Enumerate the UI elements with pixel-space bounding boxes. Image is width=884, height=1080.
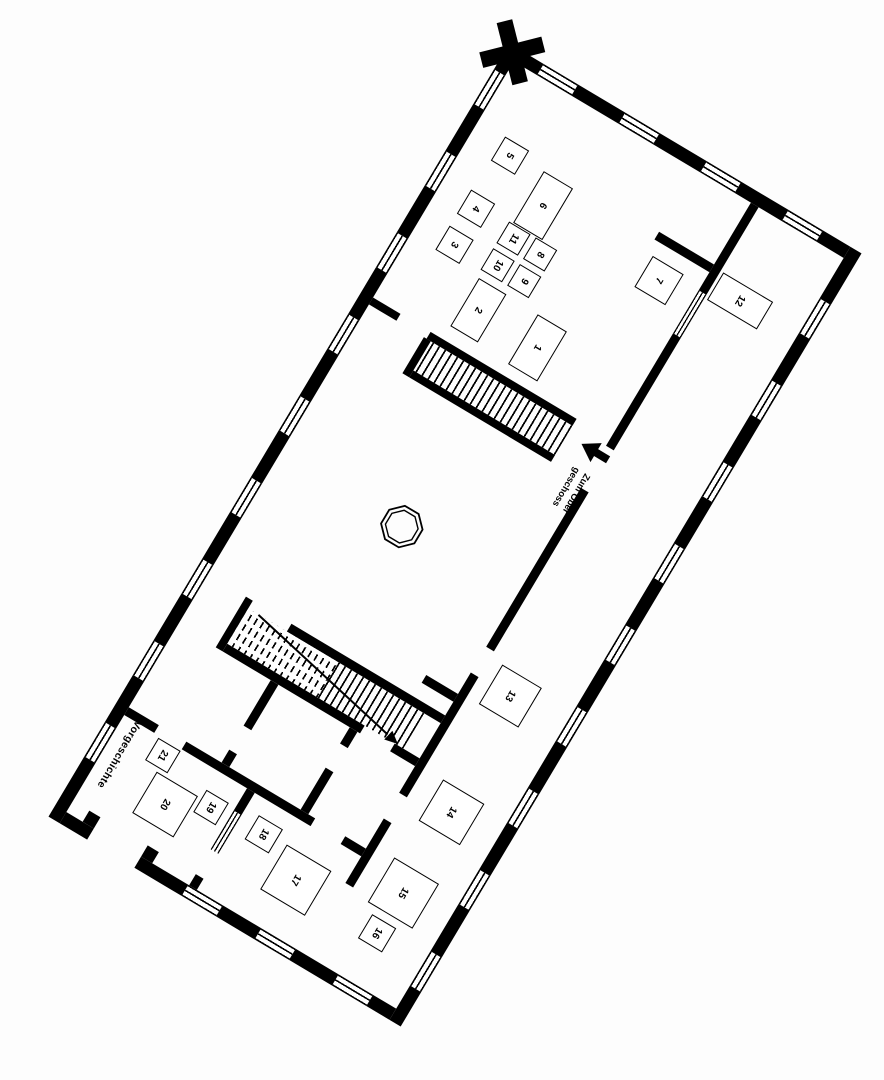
window-segment bbox=[459, 870, 491, 911]
window-segment bbox=[799, 298, 831, 339]
exhibit-box-13: 13 bbox=[479, 665, 542, 728]
wall-segment bbox=[653, 133, 707, 172]
exhibit-box-19: 19 bbox=[193, 790, 229, 826]
wall-segment bbox=[606, 333, 681, 450]
wall-segment bbox=[134, 857, 188, 896]
wall-segment bbox=[430, 904, 469, 958]
window-segment bbox=[182, 559, 214, 600]
octagon-column bbox=[372, 496, 432, 556]
exhibit-box-9: 9 bbox=[507, 264, 541, 298]
wall-segment bbox=[445, 104, 484, 158]
exhibit-box-2: 2 bbox=[450, 278, 506, 342]
exhibit-box-5: 5 bbox=[491, 136, 529, 174]
window-segment bbox=[182, 885, 223, 917]
wall-segment bbox=[771, 333, 810, 387]
window-segment bbox=[279, 396, 311, 437]
exhibit-box-7: 7 bbox=[634, 256, 683, 305]
exhibit-box-21: 21 bbox=[145, 738, 181, 774]
exhibit-box-14: 14 bbox=[419, 779, 485, 845]
window-segment bbox=[410, 951, 442, 992]
exhibit-box-18: 18 bbox=[245, 815, 283, 853]
to-upper-floor-arrow-icon bbox=[572, 431, 615, 471]
window-segment bbox=[376, 232, 408, 273]
wall-segment bbox=[234, 788, 255, 815]
wall-segment bbox=[251, 430, 290, 484]
window-segment bbox=[619, 113, 660, 145]
wall-segment bbox=[722, 414, 761, 468]
exhibit-box-3: 3 bbox=[435, 226, 473, 264]
exhibit-box-8: 8 bbox=[523, 237, 557, 271]
exhibit-box-4: 4 bbox=[457, 190, 495, 228]
window-segment bbox=[782, 210, 823, 242]
wall-segment bbox=[390, 985, 422, 1026]
window-segment bbox=[507, 788, 539, 829]
exhibit-box-12: 12 bbox=[707, 272, 773, 329]
wall-segment bbox=[397, 185, 436, 239]
wall-segment bbox=[571, 84, 625, 123]
window-segment bbox=[230, 477, 262, 518]
wall-segment bbox=[216, 905, 261, 939]
glazed-partition-segment bbox=[673, 290, 706, 338]
wall-segment bbox=[299, 348, 338, 402]
wall-segment bbox=[202, 512, 241, 566]
wall-segment bbox=[486, 488, 588, 652]
window-segment bbox=[750, 380, 782, 421]
window-segment bbox=[133, 640, 165, 681]
window-segment bbox=[605, 625, 637, 666]
exhibit-box-10: 10 bbox=[480, 248, 514, 282]
wall-segment bbox=[479, 822, 518, 876]
wall-segment bbox=[369, 298, 401, 321]
window-segment bbox=[653, 543, 685, 584]
floor-plan: Zum Ober geschoss Vorgeschichte 1 2 3 4 … bbox=[48, 43, 861, 1026]
exhibit-box-1: 1 bbox=[508, 314, 567, 381]
scanned-floor-plan-page: Zum Ober geschoss Vorgeschichte 1 2 3 4 … bbox=[0, 0, 884, 1080]
wall-segment bbox=[625, 577, 664, 631]
exhibit-box-17: 17 bbox=[260, 845, 331, 916]
wall-segment bbox=[153, 593, 192, 647]
corner-cross-ornament bbox=[464, 4, 561, 101]
wall-segment bbox=[301, 768, 334, 815]
window-segment bbox=[425, 151, 457, 192]
wall-segment bbox=[244, 680, 279, 730]
window-segment bbox=[255, 928, 296, 960]
window-segment bbox=[328, 314, 360, 355]
wall-segment bbox=[674, 496, 713, 550]
wall-segment bbox=[422, 675, 458, 702]
window-segment bbox=[702, 462, 734, 503]
window-segment bbox=[556, 706, 588, 747]
wall-segment bbox=[289, 949, 339, 986]
window-segment bbox=[700, 161, 741, 193]
wall-segment bbox=[528, 741, 567, 795]
wall-segment bbox=[576, 659, 615, 713]
window-segment bbox=[332, 974, 373, 1006]
wall-segment bbox=[348, 267, 387, 321]
exhibit-box-20: 20 bbox=[132, 772, 198, 838]
exhibit-box-16: 16 bbox=[358, 914, 396, 952]
